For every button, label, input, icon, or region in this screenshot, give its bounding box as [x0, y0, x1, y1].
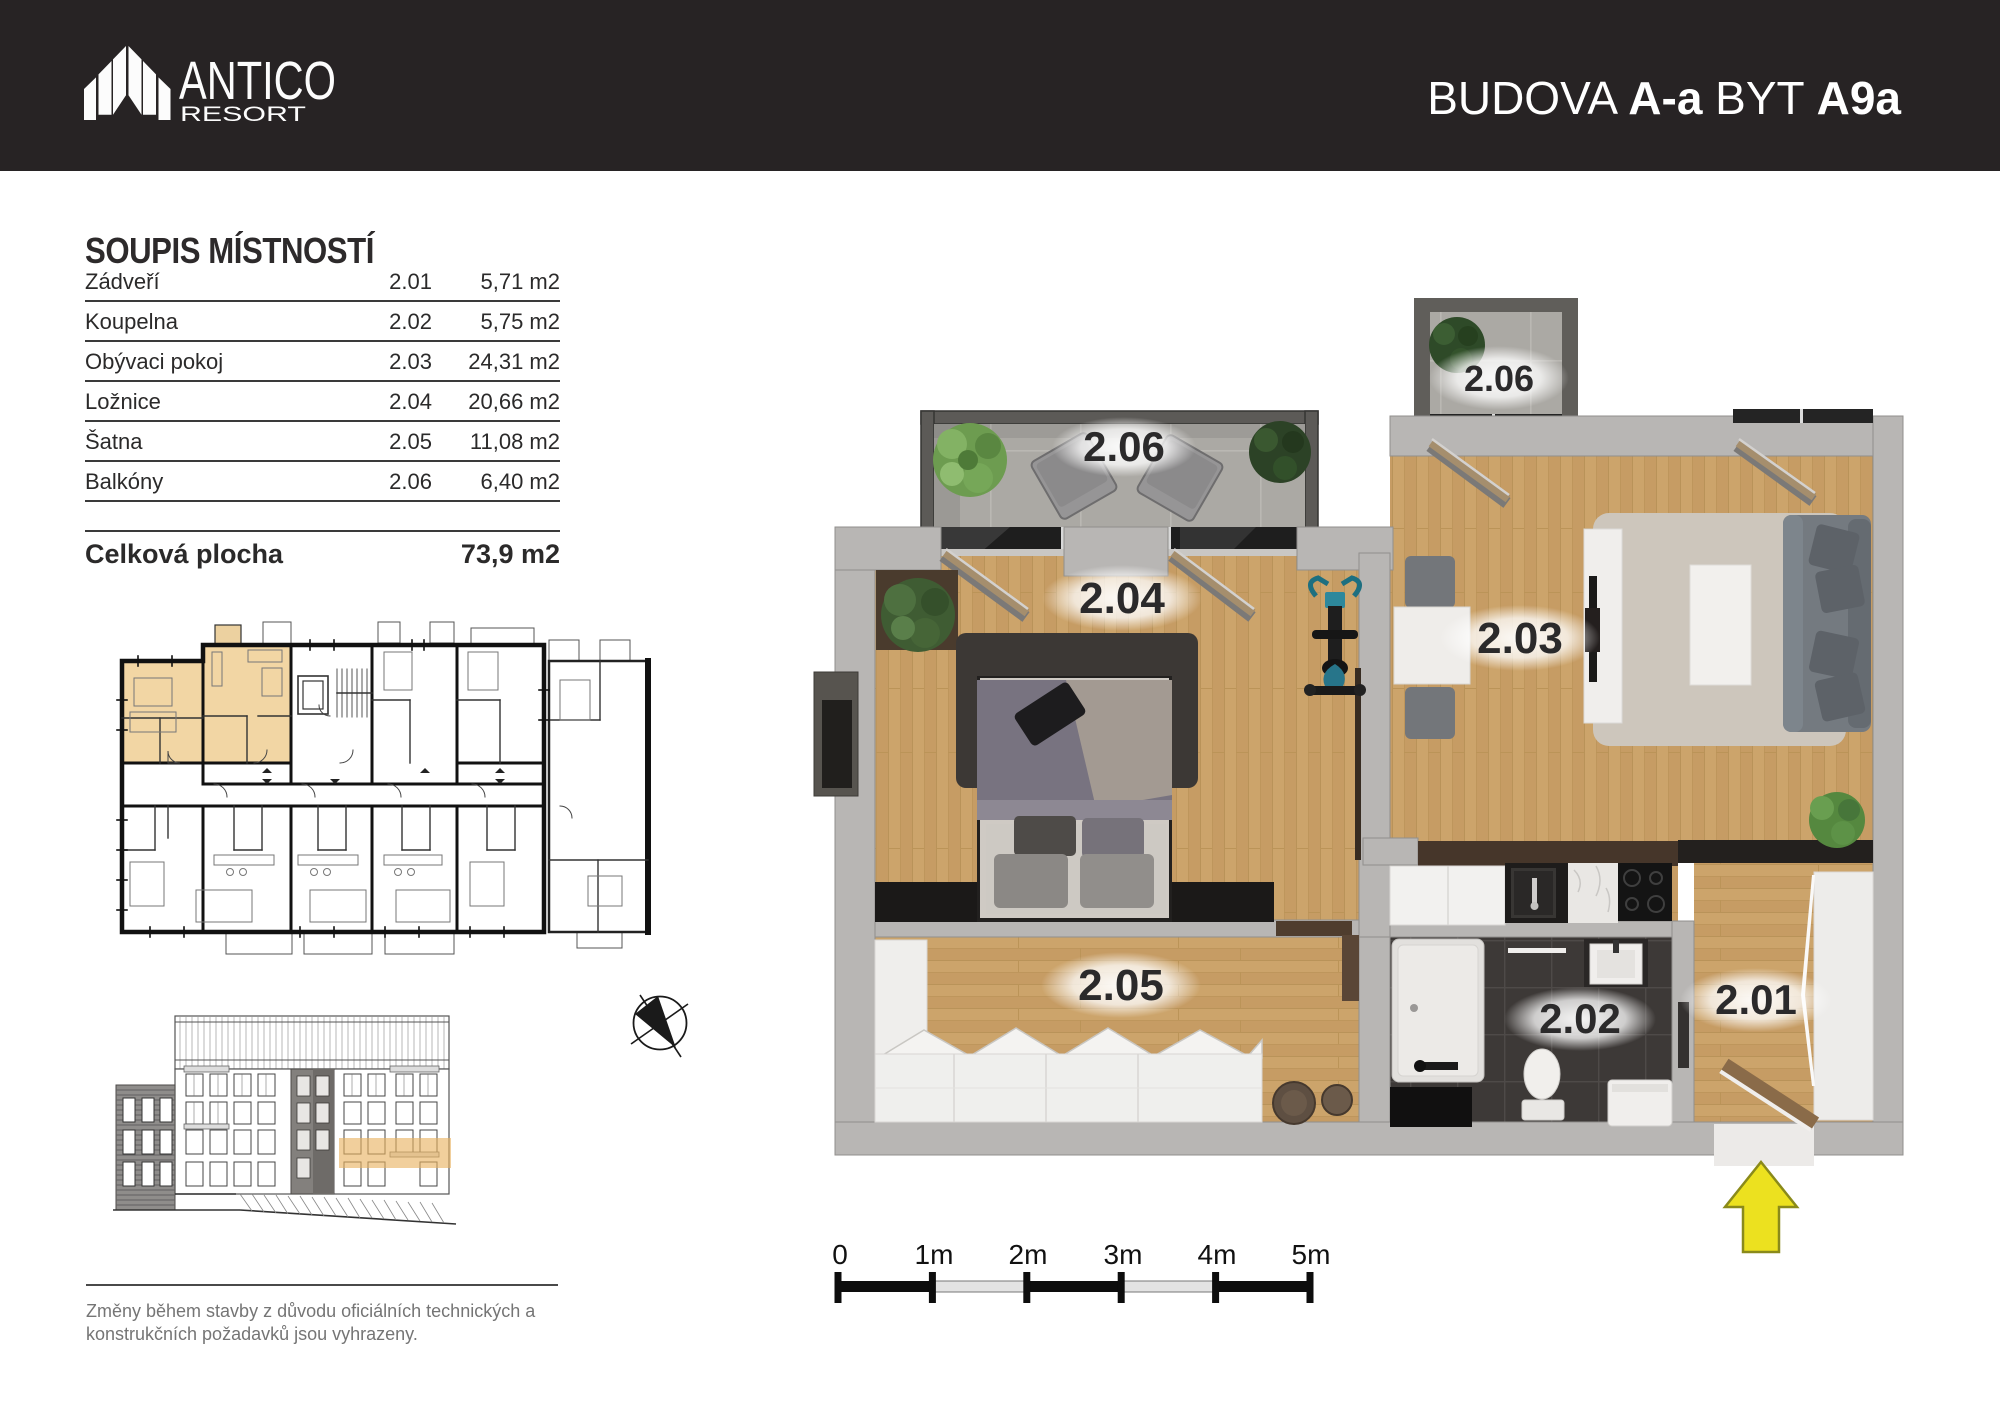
svg-text:2.06: 2.06: [1464, 358, 1534, 399]
svg-text:1m: 1m: [915, 1239, 954, 1270]
svg-text:2.04: 2.04: [1079, 574, 1165, 623]
svg-text:2.02: 2.02: [1539, 995, 1621, 1042]
svg-text:2.01: 2.01: [1715, 976, 1797, 1023]
svg-text:2m: 2m: [1009, 1239, 1048, 1270]
svg-text:4m: 4m: [1198, 1239, 1237, 1270]
svg-text:2.06: 2.06: [1083, 423, 1165, 470]
svg-text:0: 0: [832, 1239, 848, 1270]
svg-text:5m: 5m: [1292, 1239, 1331, 1270]
svg-text:3m: 3m: [1104, 1239, 1143, 1270]
svg-text:2.05: 2.05: [1078, 961, 1164, 1010]
svg-text:2.03: 2.03: [1477, 614, 1563, 663]
